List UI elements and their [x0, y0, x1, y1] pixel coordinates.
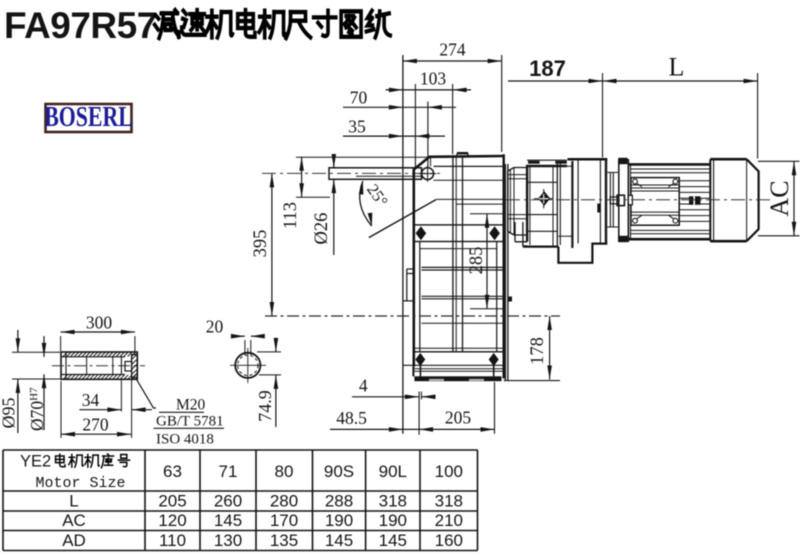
svg-text:288: 288 — [325, 492, 353, 511]
svg-text:48.5: 48.5 — [336, 408, 367, 428]
svg-text:YE2: YE2 — [20, 453, 51, 471]
svg-text:103: 103 — [420, 68, 447, 88]
svg-text:35: 35 — [348, 116, 366, 136]
svg-text:90L: 90L — [379, 462, 407, 481]
svg-text:100: 100 — [435, 462, 463, 481]
svg-text:71: 71 — [219, 462, 238, 481]
svg-text:285: 285 — [467, 247, 487, 275]
svg-text:300: 300 — [86, 313, 113, 333]
svg-text:AD: AD — [62, 531, 86, 550]
svg-text:80: 80 — [275, 462, 294, 481]
svg-text:L: L — [669, 53, 685, 82]
svg-text:70: 70 — [350, 88, 368, 108]
svg-text:BOSERL: BOSERL — [44, 103, 133, 133]
svg-text:205: 205 — [445, 408, 472, 428]
svg-text:AC: AC — [765, 180, 794, 216]
svg-text:187: 187 — [529, 56, 566, 81]
svg-text:318: 318 — [379, 492, 407, 511]
svg-text:205: 205 — [158, 492, 186, 511]
svg-text:FA97R57: FA97R57 — [4, 5, 157, 46]
svg-text:160: 160 — [435, 531, 463, 550]
svg-text:34: 34 — [82, 390, 100, 410]
svg-text:4: 4 — [359, 376, 368, 396]
svg-text:170: 170 — [270, 511, 298, 530]
svg-text:190: 190 — [325, 511, 353, 530]
svg-text:Motor Size: Motor Size — [35, 475, 125, 492]
svg-text:L: L — [69, 492, 78, 511]
svg-text:178: 178 — [528, 337, 548, 365]
svg-text:GB/T 5781: GB/T 5781 — [156, 414, 224, 430]
svg-text:130: 130 — [214, 531, 242, 550]
svg-text:145: 145 — [325, 531, 353, 550]
svg-text:210: 210 — [435, 511, 463, 530]
svg-text:Ø26: Ø26 — [312, 213, 332, 245]
svg-text:280: 280 — [270, 492, 298, 511]
svg-text:110: 110 — [159, 531, 186, 550]
svg-text:145: 145 — [379, 531, 407, 550]
svg-text:74.9: 74.9 — [255, 390, 275, 422]
svg-text:ISO 4018: ISO 4018 — [156, 432, 214, 448]
svg-text:260: 260 — [214, 492, 242, 511]
svg-text:M20: M20 — [176, 397, 206, 414]
svg-text:20: 20 — [206, 317, 224, 337]
svg-text:318: 318 — [435, 492, 463, 511]
svg-text:113: 113 — [281, 202, 301, 229]
svg-text:274: 274 — [439, 40, 466, 60]
svg-text:135: 135 — [270, 531, 298, 550]
svg-text:145: 145 — [214, 511, 242, 530]
svg-text:190: 190 — [379, 511, 407, 530]
svg-text:395: 395 — [251, 230, 271, 258]
svg-text:25°: 25° — [363, 180, 392, 210]
svg-text:Ø95: Ø95 — [0, 398, 19, 429]
svg-text:120: 120 — [158, 511, 186, 530]
svg-text:270: 270 — [82, 415, 109, 435]
svg-text:AC: AC — [62, 511, 86, 530]
svg-text:90S: 90S — [324, 462, 354, 481]
svg-text:63: 63 — [163, 462, 182, 481]
